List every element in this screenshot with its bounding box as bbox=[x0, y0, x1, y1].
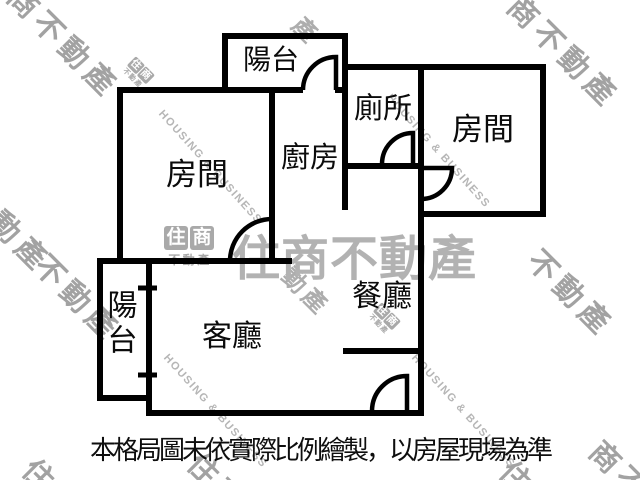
room-label-bedroom-right: 房間 bbox=[452, 114, 514, 147]
room-label-balcony-top: 陽台 bbox=[243, 46, 299, 75]
room-label-kitchen: 廚房 bbox=[281, 143, 339, 173]
room-label-toilet: 廁所 bbox=[354, 94, 412, 124]
room-label-dining: 餐廳 bbox=[352, 281, 412, 313]
disclaimer-text: 本格局圖未依實際比例繪製，以房屋現場為準 bbox=[0, 430, 640, 467]
room-labels: 陽台 房間 廚房 廁所 房間 餐廳 客廳 陽台 本格局圖未依實際比例繪製，以房屋… bbox=[0, 0, 640, 480]
room-label-living: 客廳 bbox=[202, 321, 262, 353]
room-label-bedroom-left: 房間 bbox=[166, 159, 228, 192]
room-label-balcony-left: 陽台 bbox=[103, 289, 135, 359]
floor-plan-image: 商不動產 不動產 動產 住商不 住商不動產 商不動產 不動產 住商 商不動產 動… bbox=[0, 0, 640, 480]
